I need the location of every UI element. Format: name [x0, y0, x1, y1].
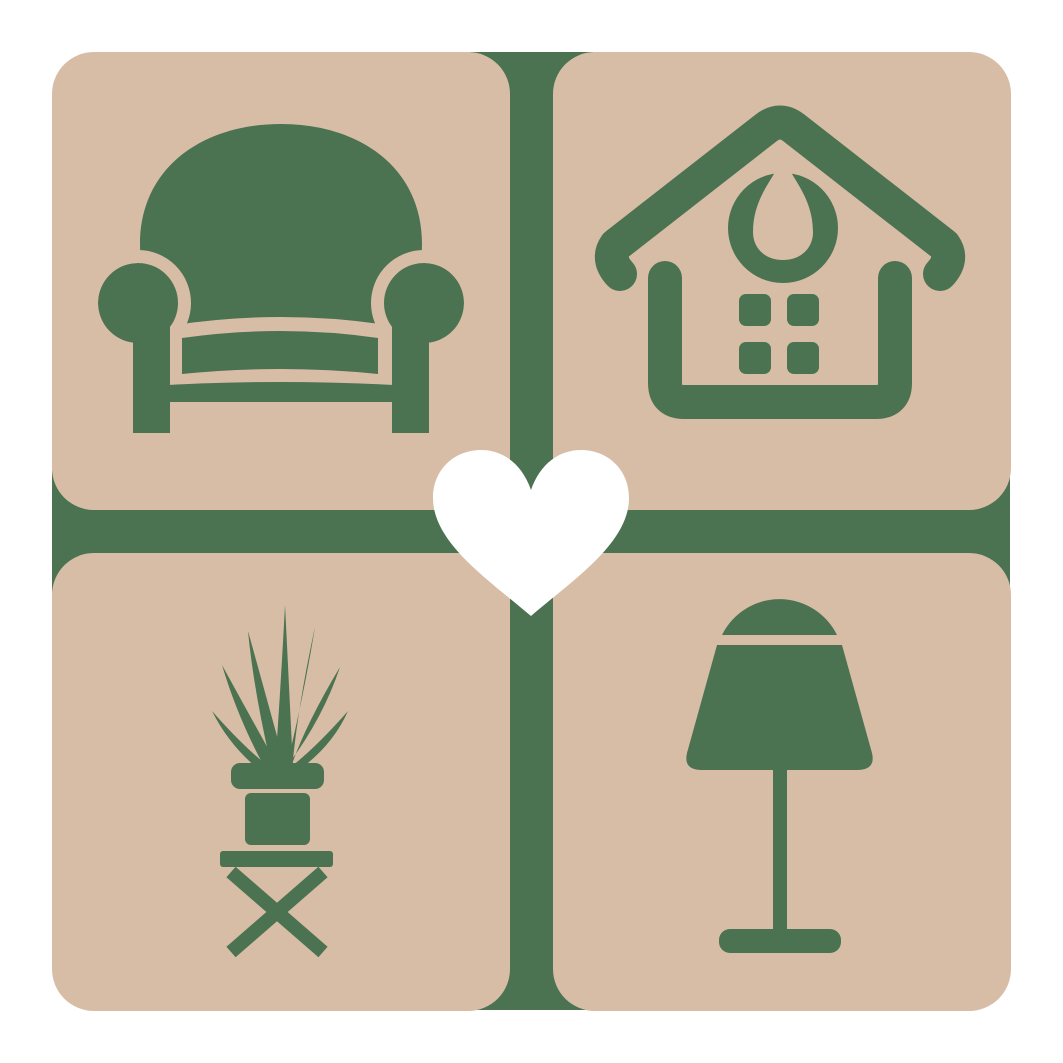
armchair-seat — [150, 331, 412, 402]
heart-icon — [425, 444, 637, 622]
house-icon — [553, 52, 1011, 510]
logo-canvas — [0, 0, 1063, 1063]
plant-stool — [220, 851, 333, 952]
lamp-stem — [773, 770, 787, 932]
lamp-base — [719, 929, 841, 953]
tile-armchair — [52, 52, 510, 510]
lamp-dome — [722, 599, 837, 635]
tile-house — [553, 52, 1011, 510]
plant-leaves — [212, 605, 348, 772]
lamp-shade — [686, 645, 872, 770]
house-walls — [665, 278, 895, 402]
armchair-icon — [52, 52, 510, 510]
center-heart — [425, 444, 637, 622]
house-window — [739, 294, 819, 374]
house-droplet-ornament — [728, 156, 838, 283]
plant-pot — [231, 763, 324, 845]
